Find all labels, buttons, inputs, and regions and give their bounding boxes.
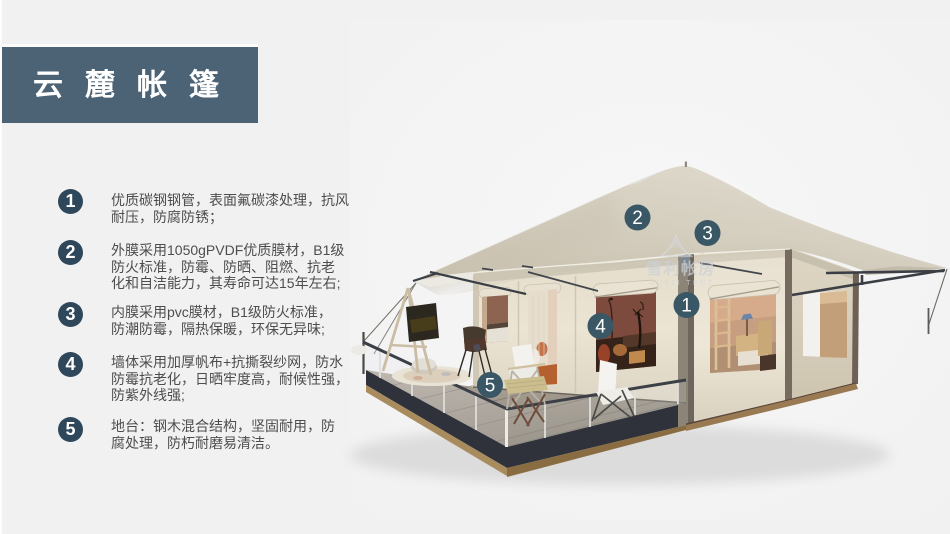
svg-text:5: 5 — [485, 376, 496, 397]
svg-text:雪利帐房: 雪利帐房 — [646, 259, 716, 278]
svg-text:1: 1 — [681, 296, 692, 317]
svg-text:XUELI TENT: XUELI TENT — [650, 280, 714, 287]
svg-text:3: 3 — [702, 224, 713, 245]
svg-text:2: 2 — [632, 208, 643, 229]
svg-text:4: 4 — [595, 317, 606, 338]
